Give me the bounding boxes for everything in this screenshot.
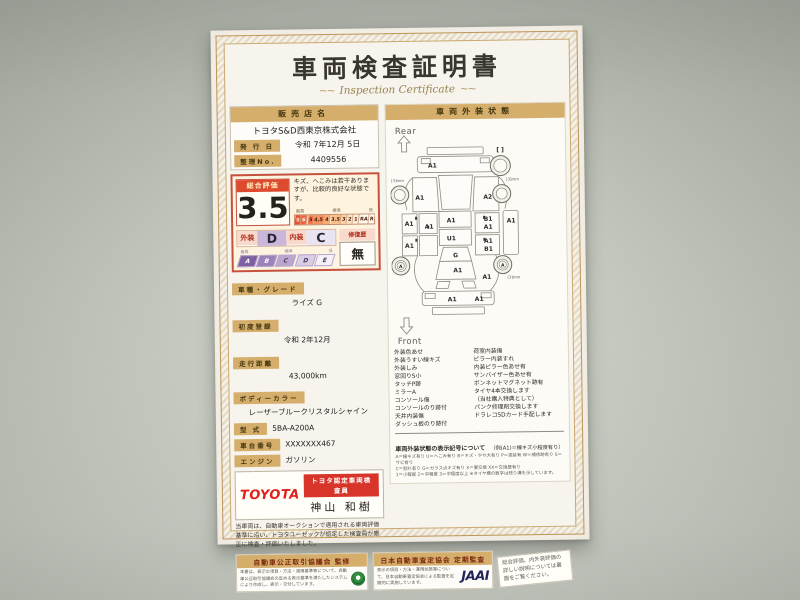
damage-mark: A1: [415, 194, 424, 201]
inspector-section: TOYOTA トヨタ認定車両検査員 神山 和樹: [235, 469, 385, 521]
scale-cell: R: [368, 214, 375, 223]
detail-row: 型 式 5BA-A200A: [234, 421, 383, 435]
detail-value: XXXXXXX467: [285, 439, 335, 449]
legend-list-right: 荷室内装傷 ピラー内装すれ 内装ピラー色あせ有 サンバイザー色あせ有 ボンネット…: [473, 346, 564, 428]
page-subtitle: ~~Inspection Certificate~~: [229, 81, 565, 98]
rating-comment: キズ、へこみは若干ありますが、比較的良好な状態です。: [293, 177, 374, 205]
detail-row: 車種・グレード ライズ G: [232, 275, 382, 312]
symbol-note-example: （例(A1)＝線キズ小程度有り）: [490, 444, 563, 451]
damage-mark: B1: [484, 245, 493, 252]
jaai-logo: JAAI: [461, 569, 489, 584]
detail-label: 車台番号: [234, 439, 280, 452]
damage-mark: B1: [484, 215, 493, 222]
detail-row: 車台番号 XXXXXXX467: [234, 437, 383, 451]
issue-date-label: 発 行 日: [234, 139, 280, 152]
scale-cell: 3.5: [330, 215, 341, 224]
exterior-condition-panel: 車両外装状態 Rear Front: [385, 101, 571, 484]
toyota-logo: TOYOTA: [240, 488, 300, 504]
grade-scale: A B C D E: [237, 254, 337, 267]
symbol-note-title: 車両外装状態の表示記号について: [395, 444, 485, 452]
damage-mark: A1: [453, 267, 462, 274]
legend-item: ドラレコSDカード手配します: [474, 411, 564, 420]
damage-mark: A2: [483, 193, 492, 200]
rear-label: Rear: [395, 126, 417, 136]
control-no-label: 整理No.: [234, 154, 282, 167]
car-diagram: Rear Front: [386, 117, 568, 347]
rating-section: 総合評価 3.5 キズ、へこみは若干ありますが、比較的良好な状態です。 最高 標…: [230, 172, 380, 272]
detail-value: ガソリン: [285, 455, 315, 466]
damage-mark: G: [453, 252, 458, 259]
certificate-paper: 車両検査証明書 ~~Inspection Certificate~~ 販売店名 …: [210, 25, 589, 544]
damage-mark: A1: [425, 223, 434, 230]
spare-tire: [490, 155, 510, 175]
damage-mark: A1: [448, 296, 457, 303]
jaai-box: 日本自動車査定協会 定期監査 表示の項目・方法・運用状態等について、日本自動車査…: [373, 551, 494, 590]
damage-mark: U1: [447, 235, 456, 242]
page-title: 車両検査証明書: [229, 52, 565, 84]
grade-cell: C: [275, 254, 297, 266]
inspection-disclaimer: 当車両は、自動車オークションで適用される車両評価基準に沿い、トヨタユーゼックが認…: [235, 522, 384, 550]
damage-mark: A1: [484, 223, 493, 230]
fair-trade-body: 本書は、表示の項目・方法・適用基準等について、自動車公正取引協議会の定める表示基…: [240, 569, 349, 589]
condition-legend: 外装色あせ 外装うすい線キズ 外装しみ 窓回りS小 タッチP跡 ミラーA コンソ…: [389, 346, 569, 430]
overall-rating-cell: 総合評価 3.5: [236, 178, 291, 226]
detail-label: 車種・グレード: [232, 282, 304, 295]
vehicle-details: 車種・グレード ライズ G 初度登録 令和 2年12月 走行距離 43,000k…: [232, 275, 384, 467]
subtitle-flourish: ~~: [319, 84, 335, 96]
detail-value: 5BA-A200A: [272, 424, 314, 434]
detail-label: 走行距離: [233, 357, 279, 370]
detail-label: エンジン: [234, 455, 280, 468]
fair-trade-box: 自動車公正取引協議会 監修 本書は、表示の項目・方法・適用基準等について、自動車…: [236, 553, 369, 592]
photo-background: 車両検査証明書 ~~Inspection Certificate~~ 販売店名 …: [0, 0, 800, 600]
tread-depth-mark: [3]mm: [508, 274, 521, 279]
damage-mark: A1: [405, 220, 414, 227]
front-label: Front: [398, 336, 422, 346]
symbol-note: 車両外装状態の表示記号について （例(A1)＝線キズ小程度有り） A＝線キズ有り…: [395, 430, 565, 483]
damage-mark: A1: [428, 162, 437, 169]
inspector-badge: トヨタ認定車両検査員: [304, 473, 380, 497]
fair-trade-emblem-icon: [352, 572, 364, 584]
detail-row: 走行距離 43,000km: [233, 349, 383, 384]
rear-arrow-icon: [398, 135, 410, 151]
interior-grade-label: 内装: [286, 231, 306, 245]
inspector-name: 神山 和樹: [304, 499, 379, 516]
symbol-note-line: 1＝小程度 2＝中程度 3＝中程度以上 ※タイヤ横の数字は残り溝を示しています。: [396, 471, 565, 480]
exterior-grade-value: D: [257, 230, 286, 245]
rear-left-wheel: [391, 185, 409, 203]
damage-mark: A1: [507, 217, 516, 224]
car-diagram-svg: Rear Front: [390, 119, 561, 347]
control-no-row: 整理No. 4409556: [231, 152, 378, 169]
subtitle-flourish: ~~: [460, 82, 476, 94]
damage-mark: [ ]: [496, 146, 504, 153]
wheel-mark: A: [501, 262, 505, 268]
control-no-value: 4409556: [282, 154, 376, 164]
legend-item: ダッシュ板のり跡付: [395, 420, 474, 429]
detail-row: エンジン ガソリン: [234, 453, 383, 467]
detail-value: 43,000km: [233, 368, 382, 384]
legend-list-left: 外装色あせ 外装うすい線キズ 外装しみ 窓回りS小 タッチP跡 ミラーA コンソ…: [394, 347, 474, 429]
repair-history-value: 無: [339, 241, 375, 266]
dealer-name: トヨタS&D西東京株式会社: [231, 120, 378, 139]
rating-scale: S 6 5 4.5 4 3.5 3 2 1 RA: [294, 213, 375, 225]
interior-grade-value: C: [306, 230, 335, 245]
footer: 自動車公正取引協議会 監修 本書は、表示の項目・方法・適用基準等について、自動車…: [236, 550, 572, 592]
detail-row: ボディーカラー レーザーブルークリスタルシャイン: [233, 384, 383, 421]
overall-rating-score: 3.5: [237, 191, 289, 225]
title-block: 車両検査証明書 ~~Inspection Certificate~~: [229, 52, 566, 98]
damage-mark: A1: [447, 217, 456, 224]
tread-depth-mark: [3]mm: [391, 177, 404, 182]
left-column: 販売店名 トヨタS&D西東京株式会社 発 行 日 令和 7年12月 5日 整理N…: [229, 104, 384, 550]
detail-value: レーザーブルークリスタルシャイン: [234, 403, 383, 421]
damage-mark: A1: [483, 273, 492, 280]
wheel-mark: A: [399, 263, 403, 269]
damage-mark: A1: [484, 237, 493, 244]
damage-mark: A1: [475, 295, 484, 302]
grade-cell: E: [314, 254, 336, 266]
dealer-section: 販売店名 トヨタS&D西東京株式会社 発 行 日 令和 7年12月 5日 整理N…: [229, 104, 379, 170]
jaai-body: 表示の項目・方法・運用状態等について、日本自動車査定協会による監査を定期的に実施…: [377, 568, 458, 588]
repair-history-label: 修復歴: [339, 228, 375, 241]
detail-row: 初度登録 令和 2年12月: [232, 312, 382, 349]
rear-right-wheel: [493, 184, 511, 202]
detail-label: 初度登録: [232, 320, 278, 333]
front-arrow-icon: [401, 317, 413, 333]
damage-mark: A1: [405, 242, 414, 249]
exterior-grade-label: 外装: [237, 231, 257, 245]
detail-label: ボディーカラー: [233, 391, 304, 404]
detail-value: 令和 2年12月: [233, 331, 382, 349]
certificate-content: 車両検査証明書 ~~Inspection Certificate~~ 販売店名 …: [227, 42, 574, 529]
back-note: 総合評価、内外装評価の詳しい説明については裏面をご覧ください。: [497, 550, 574, 589]
detail-value: ライズ G: [232, 294, 381, 312]
detail-label: 型 式: [234, 423, 267, 435]
tread-depth-mark: [3]mm: [506, 176, 519, 181]
issue-date-value: 令和 7年12月 5日: [280, 138, 375, 150]
